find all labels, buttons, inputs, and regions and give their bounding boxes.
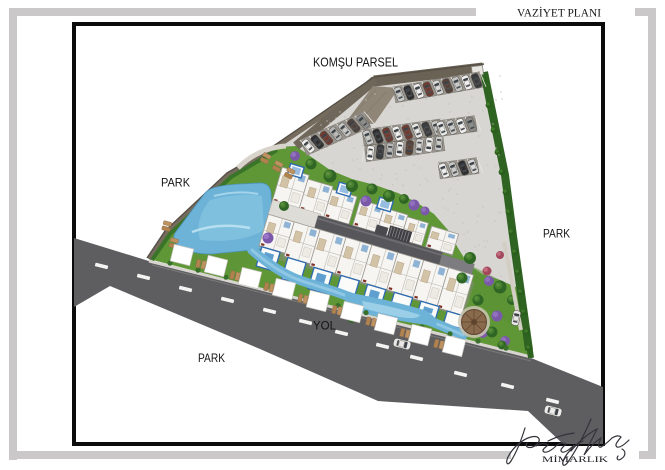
svg-text:KOMŞU PARSEL: KOMŞU PARSEL [313,55,398,70]
svg-text:YOL: YOL [313,319,336,333]
svg-text:MİMARLIK: MİMARLIK [542,454,609,464]
svg-text:PARK: PARK [543,227,570,241]
svg-text:PARK: PARK [161,176,190,190]
svg-text:VAZİYET PLANI: VAZİYET PLANI [517,6,601,20]
svg-text:PARK: PARK [198,351,225,365]
